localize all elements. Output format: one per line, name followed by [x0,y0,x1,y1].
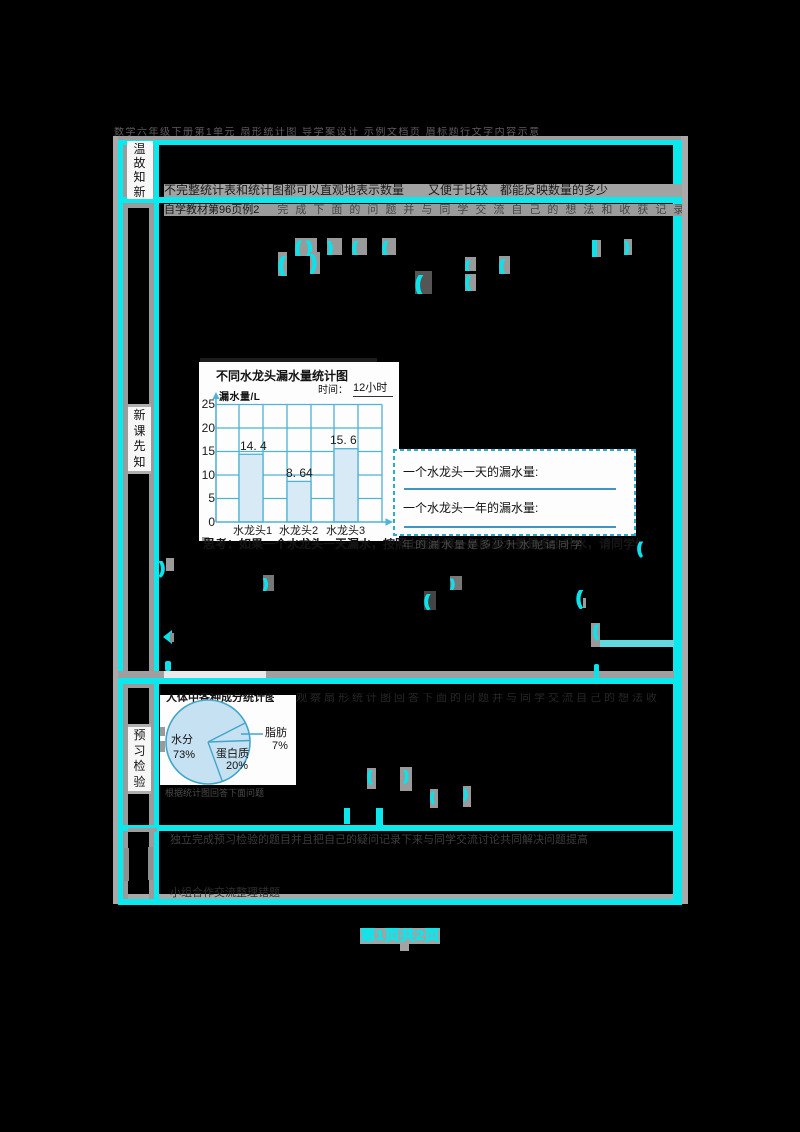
svg-text:15: 15 [202,444,216,458]
svg-text:7%: 7% [272,740,288,752]
svg-text:20%: 20% [226,760,248,772]
svg-text:水龙头3: 水龙头3 [326,524,365,537]
svg-text:蛋白质: 蛋白质 [216,746,249,760]
svg-text:水龙头1: 水龙头1 [233,524,272,537]
svg-text:14. 4: 14. 4 [240,439,267,453]
svg-text:脂肪: 脂肪 [265,725,287,739]
svg-text:水分: 水分 [171,733,193,746]
svg-text:73%: 73% [173,749,195,761]
svg-text:15. 6: 15. 6 [330,433,357,447]
svg-text:5: 5 [208,491,215,505]
svg-text:20: 20 [202,421,216,435]
svg-text:0: 0 [208,515,215,529]
svg-text:10: 10 [202,468,216,482]
svg-text:水龙头2: 水龙头2 [279,524,318,537]
svg-text:25: 25 [202,397,216,411]
svg-text:8. 64: 8. 64 [286,466,313,480]
